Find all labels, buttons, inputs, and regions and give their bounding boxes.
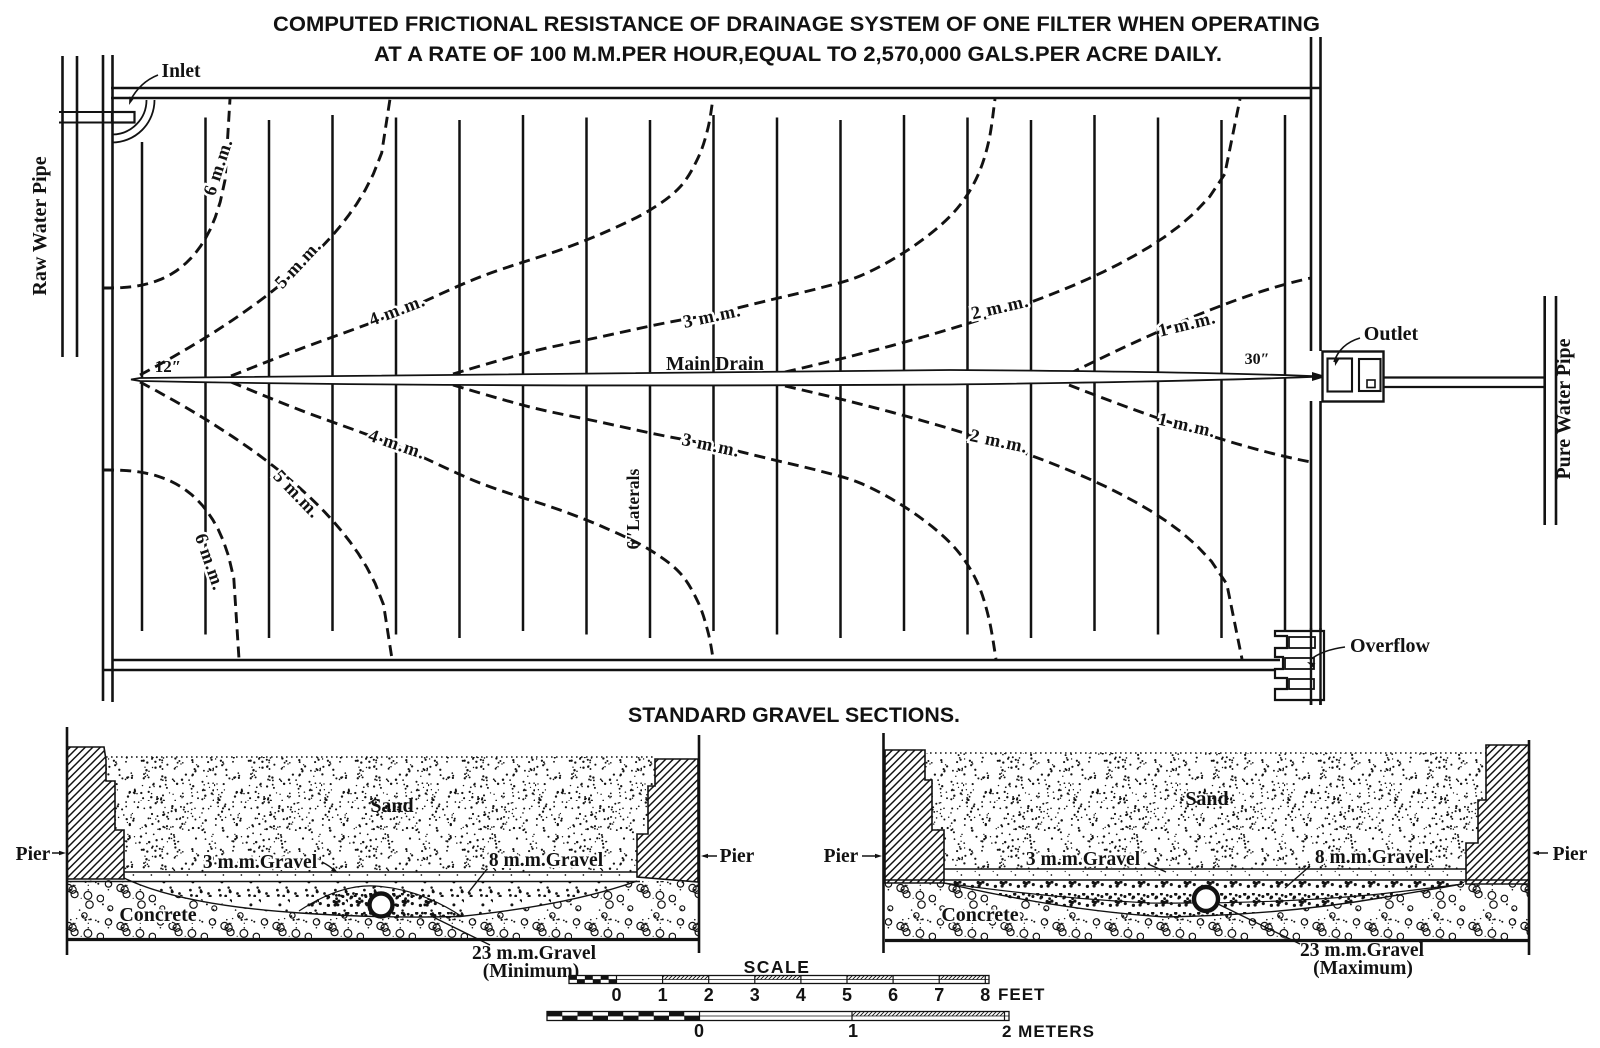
svg-text:1 m.m.: 1 m.m. (1156, 308, 1218, 342)
svg-text:0: 0 (694, 1021, 704, 1041)
svg-text:6 m.m.: 6 m.m. (190, 531, 228, 593)
svg-text:1: 1 (848, 1021, 858, 1041)
svg-text:2 METERS: 2 METERS (1002, 1022, 1095, 1041)
svg-text:Inlet: Inlet (162, 61, 202, 82)
svg-text:Sand: Sand (370, 795, 413, 817)
svg-text:1: 1 (658, 985, 668, 1005)
svg-text:5: 5 (842, 985, 852, 1005)
svg-text:Pier: Pier (824, 846, 859, 867)
svg-text:Pier: Pier (1553, 844, 1588, 865)
svg-text:2 m.m.: 2 m.m. (968, 426, 1030, 458)
svg-text:12″: 12″ (155, 357, 181, 376)
svg-text:5 m.m.: 5 m.m. (269, 467, 324, 523)
svg-text:2: 2 (704, 985, 714, 1005)
svg-text:AT A RATE OF 100 M.M.PER HOUR,: AT A RATE OF 100 M.M.PER HOUR,EQUAL TO 2… (374, 42, 1222, 66)
svg-text:Sand: Sand (1185, 788, 1228, 810)
svg-text:3: 3 (750, 985, 760, 1005)
svg-text:7: 7 (934, 985, 944, 1005)
svg-text:6″Laterals: 6″Laterals (623, 469, 643, 550)
svg-text:Pure Water Pipe: Pure Water Pipe (1553, 338, 1575, 479)
svg-text:1 m.m.: 1 m.m. (1156, 410, 1218, 443)
svg-text:Outlet: Outlet (1364, 323, 1419, 345)
svg-text:(Maximum): (Maximum) (1313, 958, 1413, 979)
svg-text:Pier: Pier (16, 844, 51, 865)
svg-text:Raw Water Pipe: Raw Water Pipe (29, 156, 51, 295)
svg-text:3 m.m.: 3 m.m. (681, 301, 743, 333)
svg-text:2 m.m.: 2 m.m. (969, 292, 1031, 325)
svg-text:FEET: FEET (998, 985, 1045, 1004)
svg-text:8 m.m.Gravel: 8 m.m.Gravel (1315, 847, 1430, 868)
svg-text:COMPUTED FRICTIONAL RESISTANCE: COMPUTED FRICTIONAL RESISTANCE OF DRAINA… (273, 12, 1320, 36)
svg-text:STANDARD GRAVEL SECTIONS.: STANDARD GRAVEL SECTIONS. (628, 704, 960, 727)
svg-text:4 m.m.: 4 m.m. (366, 291, 428, 331)
svg-text:0: 0 (611, 985, 621, 1005)
svg-text:Concrete: Concrete (941, 904, 1018, 926)
svg-text:30″: 30″ (1245, 351, 1270, 368)
svg-text:SCALE: SCALE (744, 957, 811, 977)
svg-text:3 m.m.: 3 m.m. (680, 430, 742, 462)
svg-text:8 m.m.Gravel: 8 m.m.Gravel (489, 850, 604, 871)
svg-text:3 m.m.Gravel: 3 m.m.Gravel (1026, 849, 1141, 870)
svg-text:Concrete: Concrete (119, 904, 196, 926)
svg-text:Overflow: Overflow (1350, 635, 1431, 657)
svg-text:6: 6 (888, 985, 898, 1005)
svg-text:Main Drain: Main Drain (666, 354, 764, 375)
svg-text:5 m.m.: 5 m.m. (271, 236, 326, 293)
svg-text:8: 8 (980, 985, 990, 1005)
svg-text:4: 4 (796, 985, 806, 1005)
svg-text:Pier: Pier (720, 846, 755, 867)
svg-text:3 m.m.Gravel: 3 m.m.Gravel (203, 852, 318, 873)
svg-text:(Minimum): (Minimum) (483, 961, 579, 982)
